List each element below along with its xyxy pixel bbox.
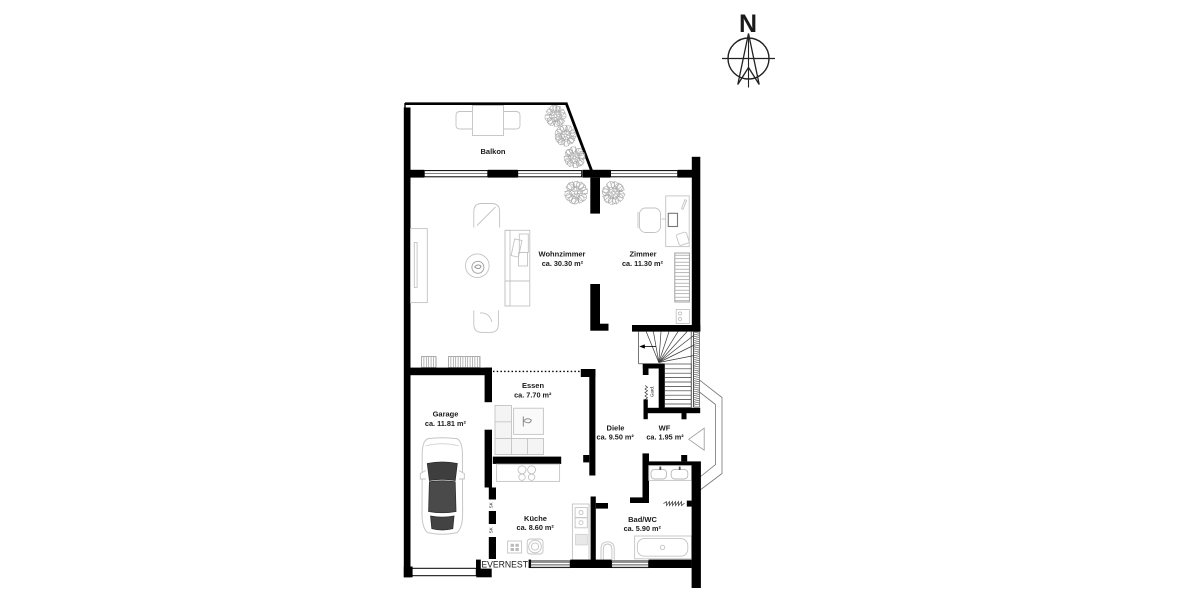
svg-text:ca. 30.30 m²: ca. 30.30 m² (542, 259, 584, 268)
svg-text:ca. 7.70 m²: ca. 7.70 m² (514, 390, 552, 399)
svg-text:Balkon: Balkon (480, 147, 505, 156)
svg-text:ca. 1.95 m²: ca. 1.95 m² (646, 433, 684, 442)
svg-text:SK: SK (488, 501, 493, 508)
svg-text:ca. 9.50 m²: ca. 9.50 m² (597, 433, 635, 442)
svg-text:SK: SK (488, 526, 493, 533)
svg-text:ca. 8.60 m²: ca. 8.60 m² (517, 523, 555, 532)
svg-text:ca. 11.81 m²: ca. 11.81 m² (425, 419, 467, 428)
svg-text:Gard.: Gard. (650, 386, 655, 397)
svg-text:Bad/WC: Bad/WC (628, 515, 657, 524)
svg-text:Wohnzimmer: Wohnzimmer (539, 250, 586, 259)
svg-text:EVERNEST: EVERNEST (481, 560, 528, 570)
svg-text:Zimmer: Zimmer (629, 250, 656, 259)
svg-text:Diele: Diele (607, 423, 625, 432)
svg-text:ca. 5.90 m²: ca. 5.90 m² (624, 524, 662, 533)
svg-text:WF: WF (659, 423, 671, 432)
svg-text:Garage: Garage (433, 410, 459, 419)
svg-text:ca. 11.30 m²: ca. 11.30 m² (622, 259, 664, 268)
svg-text:Küche: Küche (524, 514, 547, 523)
svg-text:Essen: Essen (522, 381, 545, 390)
